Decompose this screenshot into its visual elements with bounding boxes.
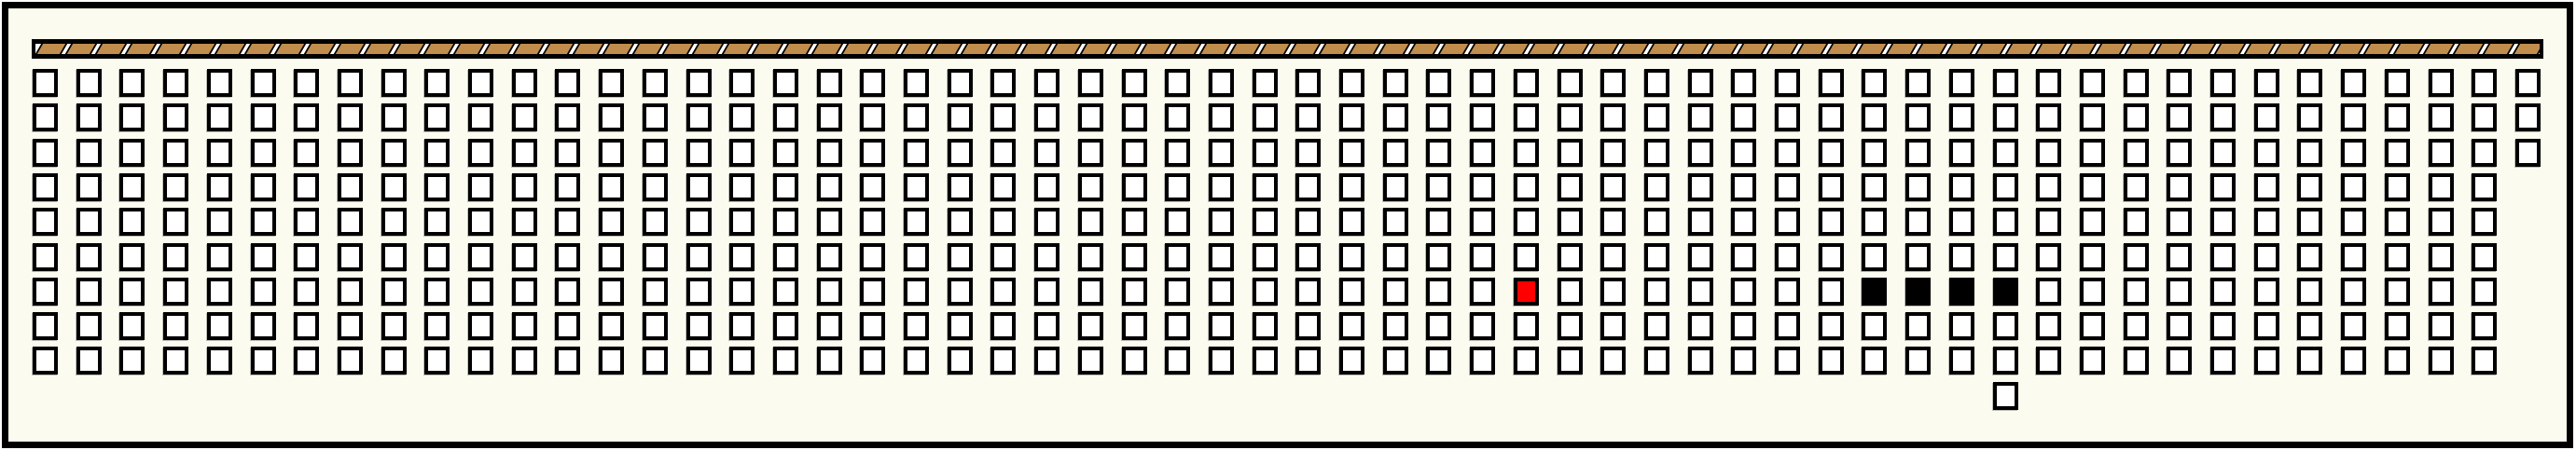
grid-square[interactable] [2254,208,2279,236]
grid-square[interactable] [1993,173,2018,201]
grid-square[interactable] [1993,243,2018,271]
grid-square[interactable] [163,173,188,201]
grid-square[interactable] [1688,278,1713,306]
grid-square[interactable] [2124,243,2149,271]
grid-square[interactable] [948,69,973,97]
grid-square[interactable] [2429,208,2454,236]
grid-square[interactable] [2297,103,2322,131]
grid-square[interactable] [1339,173,1364,201]
grid-square[interactable] [1949,103,1974,131]
grid-square[interactable] [381,312,407,340]
black-square[interactable] [1993,278,2018,306]
grid-square[interactable] [1905,103,1931,131]
grid-square[interactable] [729,312,755,340]
grid-square[interactable] [817,278,842,306]
grid-square[interactable] [990,278,1016,306]
grid-square[interactable] [1862,69,1887,97]
grid-square[interactable] [1078,347,1103,375]
grid-square[interactable] [860,243,885,271]
grid-square[interactable] [163,69,188,97]
grid-square[interactable] [2036,103,2061,131]
grid-square[interactable] [773,139,798,167]
grid-square[interactable] [1034,208,1059,236]
grid-square[interactable] [2297,139,2322,167]
grid-square[interactable] [1253,312,1278,340]
grid-square[interactable] [904,69,929,97]
grid-square[interactable] [817,69,842,97]
grid-square[interactable] [1775,103,1800,131]
grid-square[interactable] [1862,208,1887,236]
grid-square[interactable] [1949,139,1974,167]
grid-square[interactable] [1383,173,1408,201]
grid-square[interactable] [1600,278,1626,306]
grid-square[interactable] [1731,103,1756,131]
grid-square[interactable] [468,278,493,306]
grid-square[interactable] [1165,278,1190,306]
grid-square[interactable] [948,312,973,340]
grid-square[interactable] [817,208,842,236]
grid-square[interactable] [643,243,668,271]
grid-square[interactable] [1339,139,1364,167]
grid-square[interactable] [2254,278,2279,306]
grid-square[interactable] [2341,347,2366,375]
grid-square[interactable] [2429,347,2454,375]
grid-square[interactable] [686,278,712,306]
grid-square[interactable] [76,208,102,236]
grid-square[interactable] [860,278,885,306]
grid-square[interactable] [468,103,493,131]
grid-square[interactable] [1078,139,1103,167]
grid-square[interactable] [76,69,102,97]
grid-square[interactable] [1775,278,1800,306]
grid-square[interactable] [2341,243,2366,271]
black-square[interactable] [1905,278,1931,306]
grid-square[interactable] [1644,312,1669,340]
grid-square[interactable] [33,312,58,340]
grid-square[interactable] [1383,278,1408,306]
grid-square[interactable] [599,208,624,236]
grid-square[interactable] [860,103,885,131]
grid-square[interactable] [119,312,145,340]
grid-square[interactable] [512,103,537,131]
grid-square[interactable] [1122,347,1147,375]
grid-square[interactable] [904,139,929,167]
grid-square[interactable] [643,347,668,375]
grid-square[interactable] [1558,139,1583,167]
grid-square[interactable] [1165,312,1190,340]
grid-square[interactable] [2210,69,2236,97]
grid-square[interactable] [2167,278,2192,306]
grid-square[interactable] [1558,208,1583,236]
grid-square[interactable] [2297,312,2322,340]
grid-square[interactable] [1905,312,1931,340]
grid-square[interactable] [1949,312,1974,340]
grid-square[interactable] [599,312,624,340]
grid-square[interactable] [773,208,798,236]
grid-square[interactable] [2385,103,2410,131]
grid-square[interactable] [33,208,58,236]
grid-square[interactable] [729,208,755,236]
grid-square[interactable] [1209,173,1234,201]
grid-square[interactable] [1295,243,1321,271]
grid-square[interactable] [2210,278,2236,306]
grid-square[interactable] [1731,347,1756,375]
grid-square[interactable] [1644,103,1669,131]
grid-square[interactable] [1600,243,1626,271]
grid-square[interactable] [33,347,58,375]
grid-square[interactable] [2124,347,2149,375]
grid-square[interactable] [381,139,407,167]
grid-square[interactable] [1905,69,1931,97]
grid-square[interactable] [163,278,188,306]
grid-square[interactable] [773,69,798,97]
grid-square[interactable] [1862,139,1887,167]
grid-square[interactable] [729,139,755,167]
grid-square[interactable] [555,103,580,131]
grid-square[interactable] [817,347,842,375]
grid-square[interactable] [294,173,319,201]
grid-square[interactable] [1688,312,1713,340]
grid-square[interactable] [1600,139,1626,167]
grid-square[interactable] [207,312,232,340]
grid-square[interactable] [2167,347,2192,375]
grid-square[interactable] [424,173,450,201]
grid-square[interactable] [1600,173,1626,201]
grid-square[interactable] [1122,139,1147,167]
grid-square[interactable] [904,347,929,375]
grid-square[interactable] [729,103,755,131]
grid-square[interactable] [1731,173,1756,201]
grid-square[interactable] [1426,69,1451,97]
grid-square[interactable] [1426,312,1451,340]
grid-square[interactable] [2254,103,2279,131]
grid-square[interactable] [2036,312,2061,340]
grid-square[interactable] [1949,243,1974,271]
grid-square[interactable] [1688,243,1713,271]
grid-square[interactable] [1078,312,1103,340]
grid-square[interactable] [817,243,842,271]
grid-square[interactable] [729,69,755,97]
grid-square[interactable] [2124,139,2149,167]
grid-square[interactable] [1558,243,1583,271]
grid-square[interactable] [2297,69,2322,97]
grid-square[interactable] [251,243,276,271]
grid-square[interactable] [76,103,102,131]
grid-square[interactable] [1644,243,1669,271]
grid-square[interactable] [2515,103,2541,131]
grid-square[interactable] [1905,243,1931,271]
grid-square[interactable] [2429,69,2454,97]
grid-square[interactable] [338,278,363,306]
grid-square[interactable] [1993,312,2018,340]
grid-square[interactable] [1775,139,1800,167]
grid-square[interactable] [1558,312,1583,340]
grid-square[interactable] [643,312,668,340]
grid-square[interactable] [904,173,929,201]
grid-square[interactable] [1470,312,1495,340]
grid-square[interactable] [33,103,58,131]
grid-square[interactable] [990,69,1016,97]
grid-square[interactable] [1949,347,1974,375]
grid-square[interactable] [2341,208,2366,236]
grid-square[interactable] [599,139,624,167]
grid-square[interactable] [1209,69,1234,97]
grid-square[interactable] [512,139,537,167]
grid-square[interactable] [1209,103,1234,131]
grid-square[interactable] [2124,208,2149,236]
grid-square[interactable] [1514,139,1539,167]
grid-square[interactable] [948,173,973,201]
grid-square[interactable] [468,347,493,375]
grid-square[interactable] [512,312,537,340]
grid-square[interactable] [643,103,668,131]
grid-square[interactable] [424,139,450,167]
grid-square[interactable] [1558,173,1583,201]
grid-square[interactable] [1688,173,1713,201]
grid-square[interactable] [1775,243,1800,271]
grid-square[interactable] [555,139,580,167]
grid-square[interactable] [1949,173,1974,201]
grid-square[interactable] [2341,103,2366,131]
grid-square[interactable] [2036,347,2061,375]
grid-square[interactable] [1295,139,1321,167]
grid-square[interactable] [686,208,712,236]
grid-square[interactable] [2341,173,2366,201]
grid-square[interactable] [1253,347,1278,375]
grid-square[interactable] [1775,347,1800,375]
grid-square[interactable] [2124,312,2149,340]
grid-square[interactable] [294,103,319,131]
grid-square[interactable] [2167,173,2192,201]
grid-square[interactable] [817,139,842,167]
grid-square[interactable] [512,347,537,375]
grid-square[interactable] [1209,312,1234,340]
grid-square[interactable] [2429,243,2454,271]
grid-square[interactable] [2080,69,2105,97]
red-square[interactable] [1514,278,1539,306]
grid-square[interactable] [2210,173,2236,201]
grid-square[interactable] [555,173,580,201]
grid-square[interactable] [729,347,755,375]
grid-square[interactable] [2167,243,2192,271]
grid-square[interactable] [2080,312,2105,340]
grid-square[interactable] [1644,347,1669,375]
grid-square[interactable] [1034,312,1059,340]
grid-square[interactable] [1253,278,1278,306]
grid-square[interactable] [1993,139,2018,167]
grid-square[interactable] [1993,347,2018,375]
grid-square[interactable] [555,208,580,236]
grid-square[interactable] [1514,243,1539,271]
grid-square[interactable] [773,103,798,131]
grid-square[interactable] [2515,139,2541,167]
grid-square[interactable] [207,139,232,167]
grid-square[interactable] [1775,312,1800,340]
grid-square[interactable] [1862,173,1887,201]
grid-square[interactable] [1122,208,1147,236]
grid-square[interactable] [1165,139,1190,167]
grid-square[interactable] [251,173,276,201]
grid-square[interactable] [2341,278,2366,306]
grid-square[interactable] [1558,103,1583,131]
grid-square[interactable] [1078,243,1103,271]
grid-square[interactable] [1514,173,1539,201]
grid-square[interactable] [207,103,232,131]
grid-square[interactable] [1775,208,1800,236]
grid-square[interactable] [2385,208,2410,236]
grid-square[interactable] [2036,173,2061,201]
grid-square[interactable] [2036,243,2061,271]
grid-square[interactable] [2080,243,2105,271]
grid-square[interactable] [2472,208,2497,236]
grid-square[interactable] [1731,312,1756,340]
grid-square[interactable] [948,208,973,236]
grid-square[interactable] [1470,69,1495,97]
grid-square[interactable] [207,243,232,271]
grid-square[interactable] [1731,139,1756,167]
grid-square[interactable] [860,173,885,201]
grid-square[interactable] [2080,278,2105,306]
grid-square[interactable] [817,103,842,131]
grid-square[interactable] [33,243,58,271]
grid-square[interactable] [1165,243,1190,271]
grid-square[interactable] [1731,208,1756,236]
grid-square[interactable] [1078,208,1103,236]
grid-square[interactable] [817,312,842,340]
grid-square[interactable] [1644,139,1669,167]
grid-square[interactable] [1426,103,1451,131]
grid-square[interactable] [294,208,319,236]
grid-square[interactable] [555,243,580,271]
grid-square[interactable] [1426,173,1451,201]
grid-square[interactable] [2210,347,2236,375]
grid-square[interactable] [1209,243,1234,271]
grid-square[interactable] [1078,69,1103,97]
grid-square[interactable] [1426,347,1451,375]
grid-square[interactable] [338,347,363,375]
grid-square[interactable] [1819,278,1844,306]
grid-square[interactable] [1383,69,1408,97]
grid-square[interactable] [338,69,363,97]
grid-square[interactable] [1819,173,1844,201]
grid-square[interactable] [2254,139,2279,167]
grid-square[interactable] [2167,312,2192,340]
grid-square[interactable] [1034,278,1059,306]
grid-square[interactable] [1558,278,1583,306]
grid-square[interactable] [207,173,232,201]
grid-square[interactable] [1688,208,1713,236]
grid-square[interactable] [599,278,624,306]
grid-square[interactable] [1165,173,1190,201]
grid-square[interactable] [119,347,145,375]
grid-square[interactable] [990,139,1016,167]
grid-square[interactable] [643,278,668,306]
grid-square[interactable] [1253,173,1278,201]
grid-square[interactable] [2254,243,2279,271]
grid-square[interactable] [1470,278,1495,306]
grid-square[interactable] [1034,243,1059,271]
grid-square[interactable] [2210,312,2236,340]
grid-square[interactable] [1383,347,1408,375]
grid-square[interactable] [2210,103,2236,131]
grid-square[interactable] [251,347,276,375]
grid-square[interactable] [1339,243,1364,271]
grid-square[interactable] [686,139,712,167]
grid-square[interactable] [1165,69,1190,97]
grid-square[interactable] [2429,139,2454,167]
grid-square[interactable] [990,312,1016,340]
grid-square[interactable] [424,347,450,375]
grid-square[interactable] [686,312,712,340]
grid-square[interactable] [251,139,276,167]
grid-square[interactable] [424,69,450,97]
grid-square[interactable] [1295,208,1321,236]
grid-square[interactable] [1209,208,1234,236]
grid-square[interactable] [2472,347,2497,375]
grid-square[interactable] [207,208,232,236]
grid-square[interactable] [33,278,58,306]
grid-square[interactable] [2385,312,2410,340]
grid-square[interactable] [2080,208,2105,236]
grid-square[interactable] [643,208,668,236]
grid-square[interactable] [163,347,188,375]
grid-square[interactable] [294,69,319,97]
grid-square[interactable] [1949,208,1974,236]
grid-square[interactable] [1253,69,1278,97]
grid-square[interactable] [1819,139,1844,167]
grid-square[interactable] [294,347,319,375]
grid-square[interactable] [990,347,1016,375]
grid-square[interactable] [686,103,712,131]
grid-square[interactable] [555,312,580,340]
grid-square[interactable] [294,312,319,340]
grid-square[interactable] [2297,347,2322,375]
grid-square[interactable] [1122,69,1147,97]
grid-square[interactable] [119,173,145,201]
grid-square[interactable] [2341,312,2366,340]
grid-square[interactable] [1383,208,1408,236]
grid-square[interactable] [512,208,537,236]
grid-square[interactable] [773,347,798,375]
grid-square[interactable] [817,173,842,201]
grid-square[interactable] [1644,208,1669,236]
grid-square[interactable] [1122,312,1147,340]
grid-square[interactable] [163,243,188,271]
grid-square[interactable] [2124,173,2149,201]
grid-square[interactable] [468,69,493,97]
grid-square[interactable] [1644,278,1669,306]
grid-square[interactable] [904,312,929,340]
grid-square[interactable] [2385,347,2410,375]
grid-square[interactable] [1514,69,1539,97]
grid-square[interactable] [1470,347,1495,375]
grid-square[interactable] [2472,103,2497,131]
grid-square[interactable] [773,278,798,306]
grid-square[interactable] [338,173,363,201]
grid-square[interactable] [294,139,319,167]
grid-square[interactable] [729,173,755,201]
grid-square[interactable] [1905,208,1931,236]
grid-square[interactable] [1514,208,1539,236]
grid-square[interactable] [2167,208,2192,236]
grid-square[interactable] [1383,312,1408,340]
grid-square[interactable] [2254,69,2279,97]
grid-square[interactable] [2429,103,2454,131]
grid-square[interactable] [76,347,102,375]
grid-square[interactable] [2254,312,2279,340]
grid-square[interactable] [1993,208,2018,236]
grid-square[interactable] [2167,103,2192,131]
